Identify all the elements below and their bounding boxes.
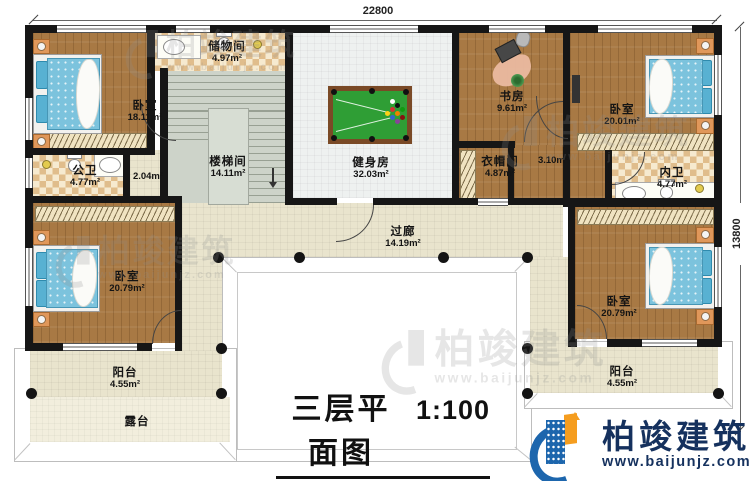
floor-walkway-left: [182, 257, 222, 351]
window: [25, 248, 33, 306]
dimension-right-value: 13800: [731, 203, 743, 265]
plant: [511, 74, 524, 87]
wardrobe-hatch: [577, 133, 714, 151]
wardrobe-hatch: [577, 209, 714, 225]
column-dot: [26, 388, 37, 399]
column-dot: [713, 388, 724, 399]
window: [25, 98, 33, 140]
column-dot: [438, 252, 449, 263]
drawing-scale: 1:100: [416, 395, 490, 426]
window: [598, 25, 692, 33]
window: [176, 25, 210, 33]
column-dot: [522, 343, 533, 354]
wall: [285, 198, 337, 205]
room-label-study: 书房 9.61m²: [472, 91, 552, 115]
pool-table: [328, 86, 412, 144]
wall: [568, 198, 575, 347]
wall: [25, 196, 182, 203]
room-label-terrace: 露台: [97, 416, 177, 429]
window: [57, 25, 146, 33]
room-label-balcony-left: 阳台 4.55m²: [85, 367, 165, 391]
window: [714, 55, 722, 115]
wall: [373, 198, 452, 205]
wall: [452, 141, 515, 148]
column-dot: [216, 343, 227, 354]
wall: [25, 343, 63, 351]
column-dot: [216, 388, 227, 399]
nightstand: [696, 227, 714, 243]
stair-direction-arrow: [269, 182, 277, 188]
nightstand: [33, 230, 50, 245]
wall: [452, 25, 459, 205]
page-title: 三层平面图: [276, 384, 406, 472]
title-underline: [276, 476, 490, 479]
window: [63, 343, 137, 351]
column-dot: [522, 388, 533, 399]
wall: [452, 198, 478, 205]
room-label-bedroom-tr: 卧室 20.01m²: [582, 104, 662, 128]
wall: [25, 148, 155, 155]
window: [489, 25, 545, 33]
column-dot: [522, 252, 533, 263]
nightstand: [696, 309, 714, 325]
wall: [285, 25, 293, 205]
wall: [508, 198, 563, 205]
room-label-corridor: 过廊 14.19m²: [363, 226, 443, 250]
room-label-bedroom-tl: 卧室 18.11m²: [105, 100, 185, 124]
wall: [607, 339, 642, 347]
room-label-storage: 储物间 4.97m²: [187, 41, 267, 65]
room-label-bedroom-br: 卧室 20.79m²: [579, 296, 659, 320]
title-block: 三层平面图 1:100 本层建筑面积：203.78m² 层高：3.3m: [276, 384, 490, 481]
brand-name: 柏竣建筑: [602, 420, 750, 455]
wall: [568, 339, 577, 347]
stair-direction-arrow: [272, 168, 274, 182]
brand-website: www.baijunjz.com: [602, 454, 750, 470]
window: [25, 158, 33, 188]
dimension-top-value: 22800: [348, 5, 408, 17]
floor-plan-canvas: 22800 13800 卧室 18.11m² 储物间 4.97m² 公卫 4.7…: [0, 0, 750, 481]
wardrobe-hatch: [35, 206, 175, 222]
room-label-hall-right: 3.10m²: [523, 156, 583, 167]
tv-cabinet: [572, 75, 580, 103]
room-label-balcony-right: 阳台 4.55m²: [582, 366, 662, 390]
sink-icon: [163, 39, 185, 55]
room-label-stairwell: 楼梯间 14.11m²: [188, 156, 268, 180]
dimension-line-top: [33, 20, 717, 21]
window: [478, 198, 508, 206]
wall: [605, 150, 612, 198]
room-label-gym: 健身房 32.03m²: [331, 157, 411, 181]
brand-logo-icon: [530, 412, 594, 478]
wall: [147, 25, 155, 155]
nightstand: [696, 38, 714, 54]
nightstand: [33, 134, 50, 149]
wall: [137, 343, 152, 351]
room-label-bedroom-bl: 卧室 20.79m²: [87, 271, 167, 295]
wall: [563, 198, 714, 207]
window: [642, 339, 697, 347]
room-label-private-bath: 内卫 4.77m²: [632, 167, 712, 191]
column-dot: [294, 252, 305, 263]
wall: [697, 339, 722, 347]
nightstand: [696, 118, 714, 134]
room-label-hall-left: 2.04m²: [118, 172, 178, 183]
nightstand: [33, 312, 50, 327]
column-dot: [213, 252, 224, 263]
window: [714, 247, 722, 307]
bed: [33, 54, 102, 134]
window: [330, 25, 418, 33]
room-label-public-bath: 公卫 4.77m²: [45, 165, 125, 189]
brand-logo: 柏竣建筑 www.baijunjz.com: [530, 412, 750, 478]
nightstand: [33, 39, 50, 54]
